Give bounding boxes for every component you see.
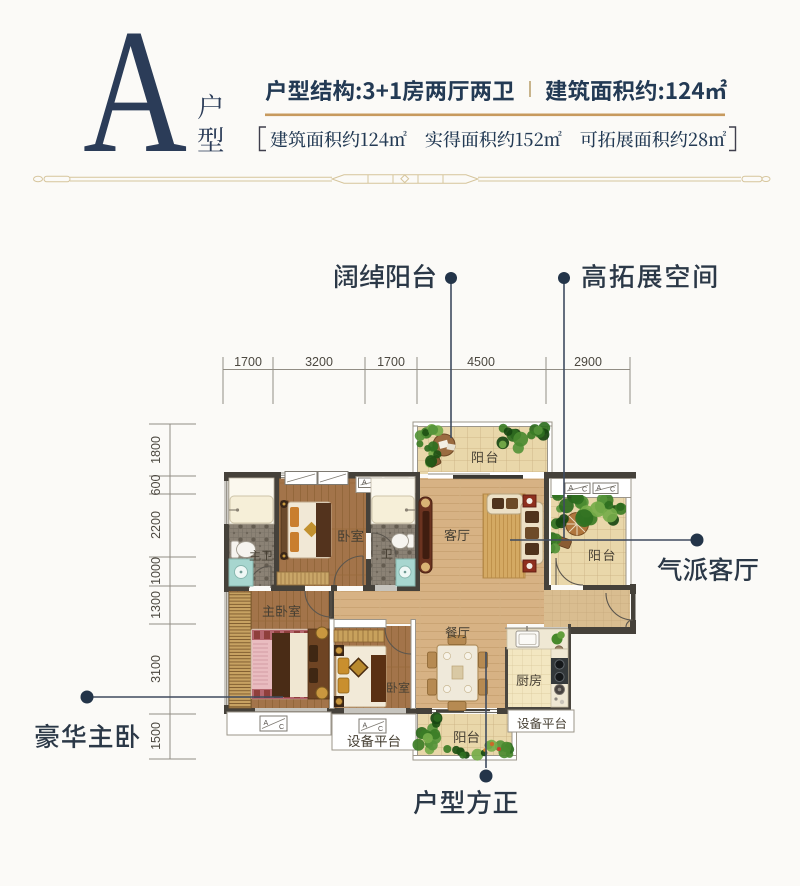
svg-text:1300: 1300: [149, 591, 163, 619]
svg-text:1500: 1500: [149, 722, 163, 750]
svg-text:A: A: [363, 723, 368, 730]
svg-text:C: C: [279, 724, 284, 731]
svg-text:1700: 1700: [377, 355, 405, 369]
svg-text:A: A: [597, 485, 602, 492]
svg-text:A: A: [362, 479, 367, 486]
svg-text:C: C: [610, 487, 615, 494]
svg-text:C: C: [582, 487, 587, 494]
svg-text:600: 600: [149, 475, 163, 496]
svg-text:A: A: [569, 485, 574, 492]
svg-text:3100: 3100: [149, 655, 163, 683]
svg-text:2200: 2200: [149, 511, 163, 539]
svg-text:2900: 2900: [574, 355, 602, 369]
svg-text:C: C: [378, 726, 383, 733]
svg-text:3200: 3200: [305, 355, 333, 369]
svg-text:1000: 1000: [149, 557, 163, 585]
svg-text:1700: 1700: [234, 355, 262, 369]
svg-text:4500: 4500: [467, 355, 495, 369]
svg-text:A: A: [264, 720, 269, 727]
svg-text:1800: 1800: [149, 436, 163, 464]
